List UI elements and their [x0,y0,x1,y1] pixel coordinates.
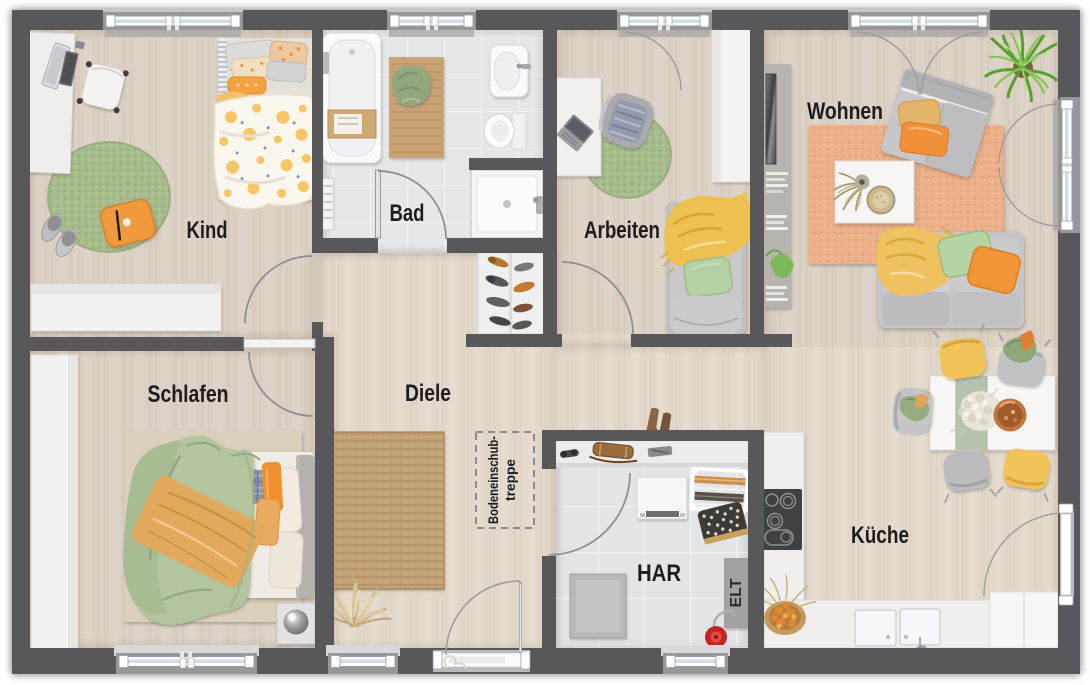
svg-text:Arbeiten: Arbeiten [584,217,660,244]
svg-text:treppe: treppe [503,459,518,501]
svg-text:Küche: Küche [851,522,909,549]
svg-text:Bad: Bad [390,200,425,227]
svg-text:Kind: Kind [187,217,228,244]
svg-text:Schlafen: Schlafen [148,381,229,408]
svg-text:Wohnen: Wohnen [807,98,883,125]
svg-text:ELT: ELT [728,578,745,607]
svg-text:HAR: HAR [637,560,681,587]
svg-text:Diele: Diele [405,380,451,407]
svg-text:Bodeneinschub-: Bodeneinschub- [486,436,501,524]
